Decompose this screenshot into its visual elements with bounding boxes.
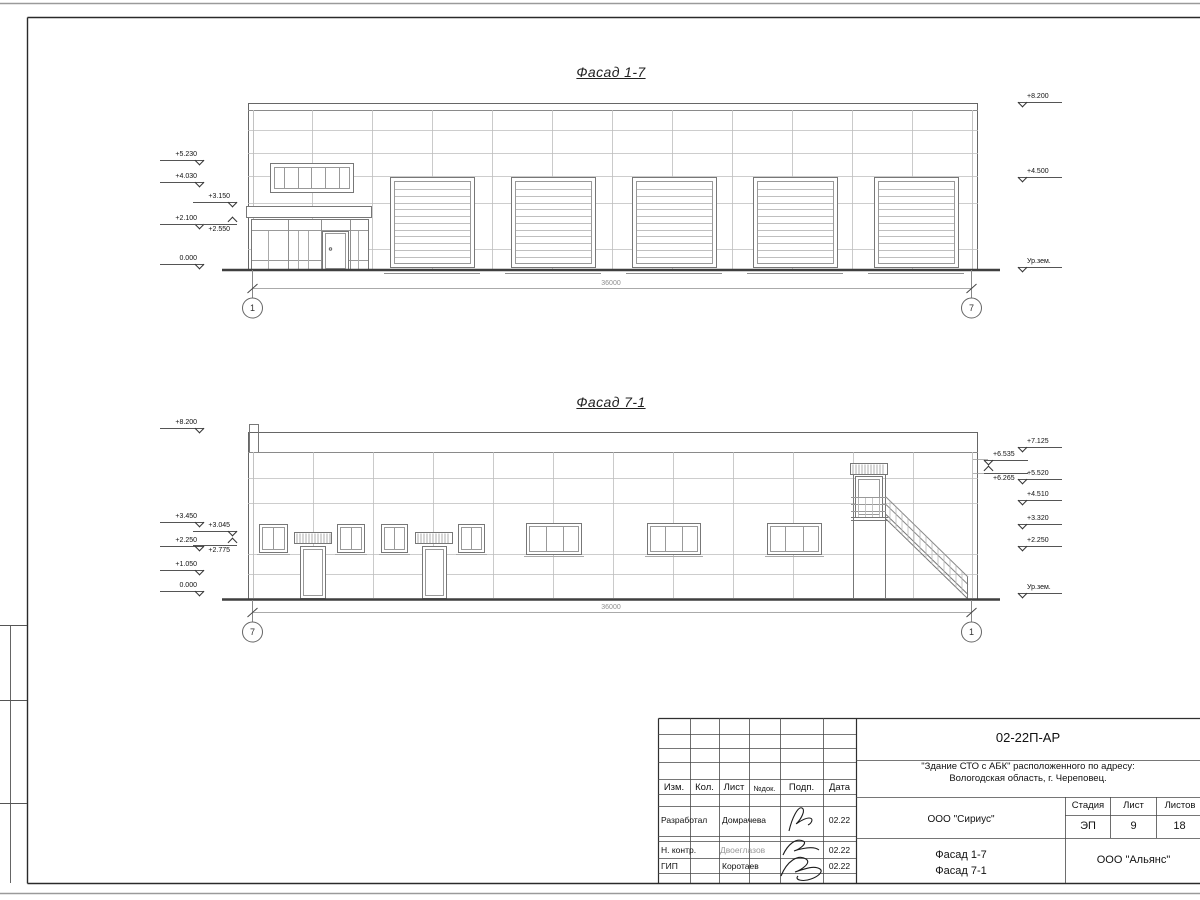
project-name-line2: Вологодская область, г. Череповец. xyxy=(858,773,1198,785)
facade-7-1-title: Фасад 7-1 xyxy=(531,394,691,410)
sheets-label: Листов xyxy=(1157,800,1200,811)
col-izm: Изм. xyxy=(658,782,690,793)
drawing-sheet: Фасад 1-7 Фасад 7-1 36000 36000 1 7 7 1 … xyxy=(0,0,1200,900)
signatures xyxy=(781,808,821,881)
sheet-label: Лист xyxy=(1111,800,1156,811)
col-sign: Подп. xyxy=(780,782,823,793)
f71-door-1 xyxy=(295,533,332,599)
f71-window-4 xyxy=(456,525,487,555)
f71-window-1 xyxy=(257,525,290,555)
row1-name: Домрачева xyxy=(722,815,766,825)
elevation-mark: +4.030 xyxy=(160,172,204,183)
f17-entrance-canopy xyxy=(247,207,372,218)
row1-role: Разработал xyxy=(661,815,707,825)
elevation-mark: +2.550 xyxy=(193,224,237,235)
col-kol: Кол. xyxy=(690,782,719,793)
elevation-mark: 0.000 xyxy=(160,254,204,265)
elevation-mark: +2.250 xyxy=(1018,536,1062,547)
f17-ribbon-window xyxy=(271,164,354,193)
f71-exterior-stair xyxy=(851,464,969,600)
f17-axis-right: 7 xyxy=(961,302,982,314)
f17-dimension-text: 36000 xyxy=(581,279,641,288)
project-name-line1: "Здание СТО с АБК" расположенного по адр… xyxy=(858,761,1198,773)
f17-axis-left: 1 xyxy=(242,302,263,314)
row2-date: 02.22 xyxy=(823,845,856,855)
f17-garage-door-5 xyxy=(868,178,964,274)
f17-entrance-storefront xyxy=(252,220,369,271)
f71-door-2 xyxy=(416,533,453,599)
elevation-mark: 0.000 xyxy=(160,581,204,592)
elevation-mark: +4.500 xyxy=(1018,167,1062,178)
elevation-mark: Ур.зем. xyxy=(1018,257,1062,268)
f71-axis-left: 7 xyxy=(242,626,263,638)
f17-garage-door-2 xyxy=(505,178,601,274)
left-margin-table xyxy=(0,625,27,883)
elevation-mark: +8.200 xyxy=(1018,92,1062,103)
elevation-mark: +3.045 xyxy=(193,521,237,532)
row3-date: 02.22 xyxy=(823,861,856,871)
f17-garage-door-1 xyxy=(384,178,480,274)
drawing-title-line2: Фасад 7-1 xyxy=(858,865,1064,877)
signature-nkontr xyxy=(783,840,819,855)
signature-gip xyxy=(781,857,821,880)
f17-garage-door-3 xyxy=(626,178,722,274)
f71-parapet-step xyxy=(250,425,259,453)
f17-dimension-and-axes xyxy=(243,270,982,318)
signature-razrabotal xyxy=(789,808,812,831)
stair-balusters xyxy=(890,501,962,594)
elevation-mark: +5.230 xyxy=(160,150,204,161)
elevation-mark: +2.775 xyxy=(193,545,237,556)
f17-entrance-door xyxy=(323,232,349,271)
elevation-mark: +5.520 xyxy=(1018,469,1062,480)
designer-org: ООО "Сириус" xyxy=(858,814,1064,825)
facade-1-7-title: Фасад 1-7 xyxy=(531,64,691,80)
elevation-mark: Ур.зем. xyxy=(1018,583,1062,594)
f71-window-2 xyxy=(335,525,367,555)
elevation-mark: +4.510 xyxy=(1018,490,1062,501)
f71-window-7 xyxy=(765,524,824,557)
elevation-mark: +3.320 xyxy=(1018,514,1062,525)
elevation-mark: +8.200 xyxy=(160,418,204,429)
f17-garage-door-4 xyxy=(747,178,843,274)
doc-code: 02-22П-АР xyxy=(856,730,1200,746)
stage-label: Стадия xyxy=(1066,800,1110,811)
row2-name: Двоеглазов xyxy=(720,845,765,855)
f71-window-6 xyxy=(645,524,703,557)
row3-name: Коротаев xyxy=(722,861,759,871)
row1-date: 02.22 xyxy=(823,815,856,825)
f71-window-5 xyxy=(524,524,584,557)
drawing-title-line1: Фасад 1-7 xyxy=(858,849,1064,861)
row3-role: ГИП xyxy=(661,861,678,871)
col-date: Дата xyxy=(823,782,856,793)
elevation-mark: +7.125 xyxy=(1018,437,1062,448)
f71-axis-right: 1 xyxy=(961,626,982,638)
f71-window-3 xyxy=(379,525,410,555)
elevation-mark: +3.150 xyxy=(193,192,237,203)
col-doc: №док. xyxy=(749,784,780,793)
col-list: Лист xyxy=(719,782,749,793)
stair-landing xyxy=(851,518,888,521)
stage-value: ЭП xyxy=(1066,820,1110,832)
elevation-mark: +6.535 xyxy=(984,450,1028,461)
contractor-org: ООО "Альянс" xyxy=(1067,854,1200,866)
sheet-number: 9 xyxy=(1111,820,1156,832)
row2-role: Н. контр. xyxy=(661,845,696,855)
f71-dimension-text: 36000 xyxy=(581,603,641,612)
elevation-mark: +1.050 xyxy=(160,560,204,571)
sheets-total: 18 xyxy=(1157,820,1200,832)
